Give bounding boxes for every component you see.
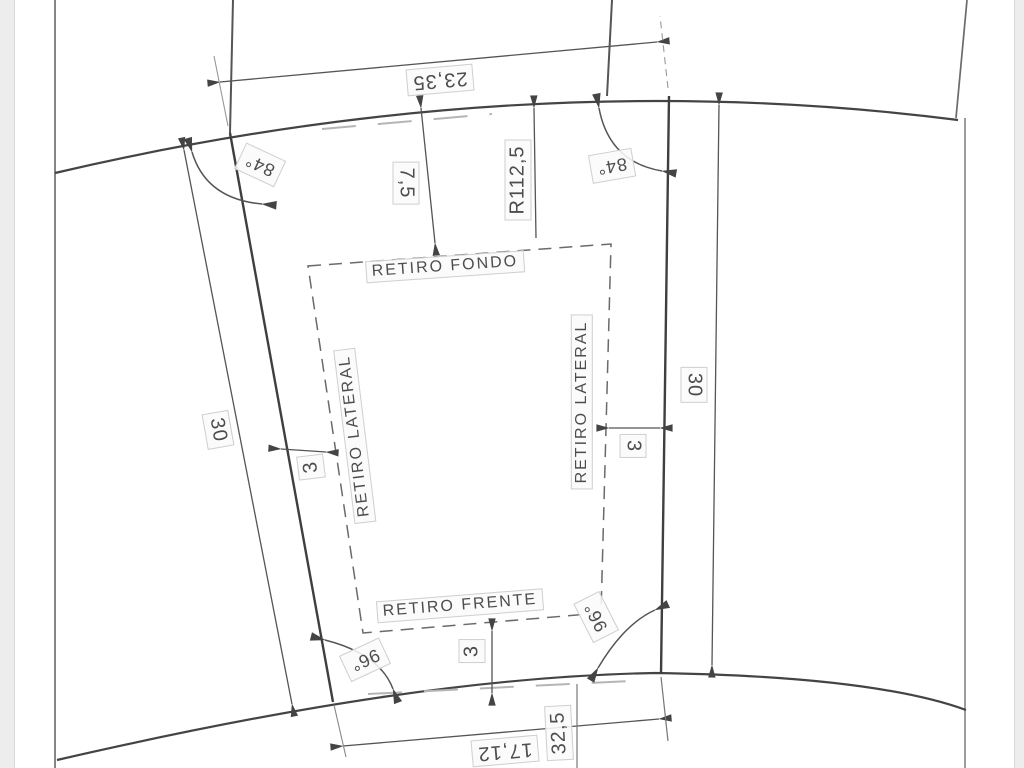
plot-linework [0,0,1024,768]
ext-line-front-right [661,677,668,741]
dim-left-setback-label: 3 [296,453,326,480]
dim-line-left-side [184,150,292,704]
neighbor-boundary-right [607,0,612,96]
neighbor-line-right-outer [956,0,967,118]
dim-line-right-side [712,105,719,665]
right-setback-label: RETIRO LATERAL [571,315,593,490]
lot-boundary-left [230,133,333,702]
dim-front-setback-label: 3 [459,639,486,663]
dim-rear-radius-label: R112,5 [505,139,532,220]
ext-line-front-left [334,705,346,757]
dim-front-width-label: 32,5 [544,705,574,761]
leader-line-radius [534,108,536,238]
dim-line-rear-setback [421,108,435,243]
dim-rear-setback-label: 7,5 [393,162,420,205]
dim-right-setback-label: 3 [620,434,647,458]
site-plan-drawing: RETIRO FONDO RETIRO LATERAL RETIRO LATER… [0,0,1024,768]
ext-line-rear-left [214,56,228,126]
neighbor-boundary-left [230,0,233,133]
lot-boundary-right [661,96,669,674]
dim-right-side-label: 30 [681,367,708,403]
ext-line-rear-right [660,16,668,88]
